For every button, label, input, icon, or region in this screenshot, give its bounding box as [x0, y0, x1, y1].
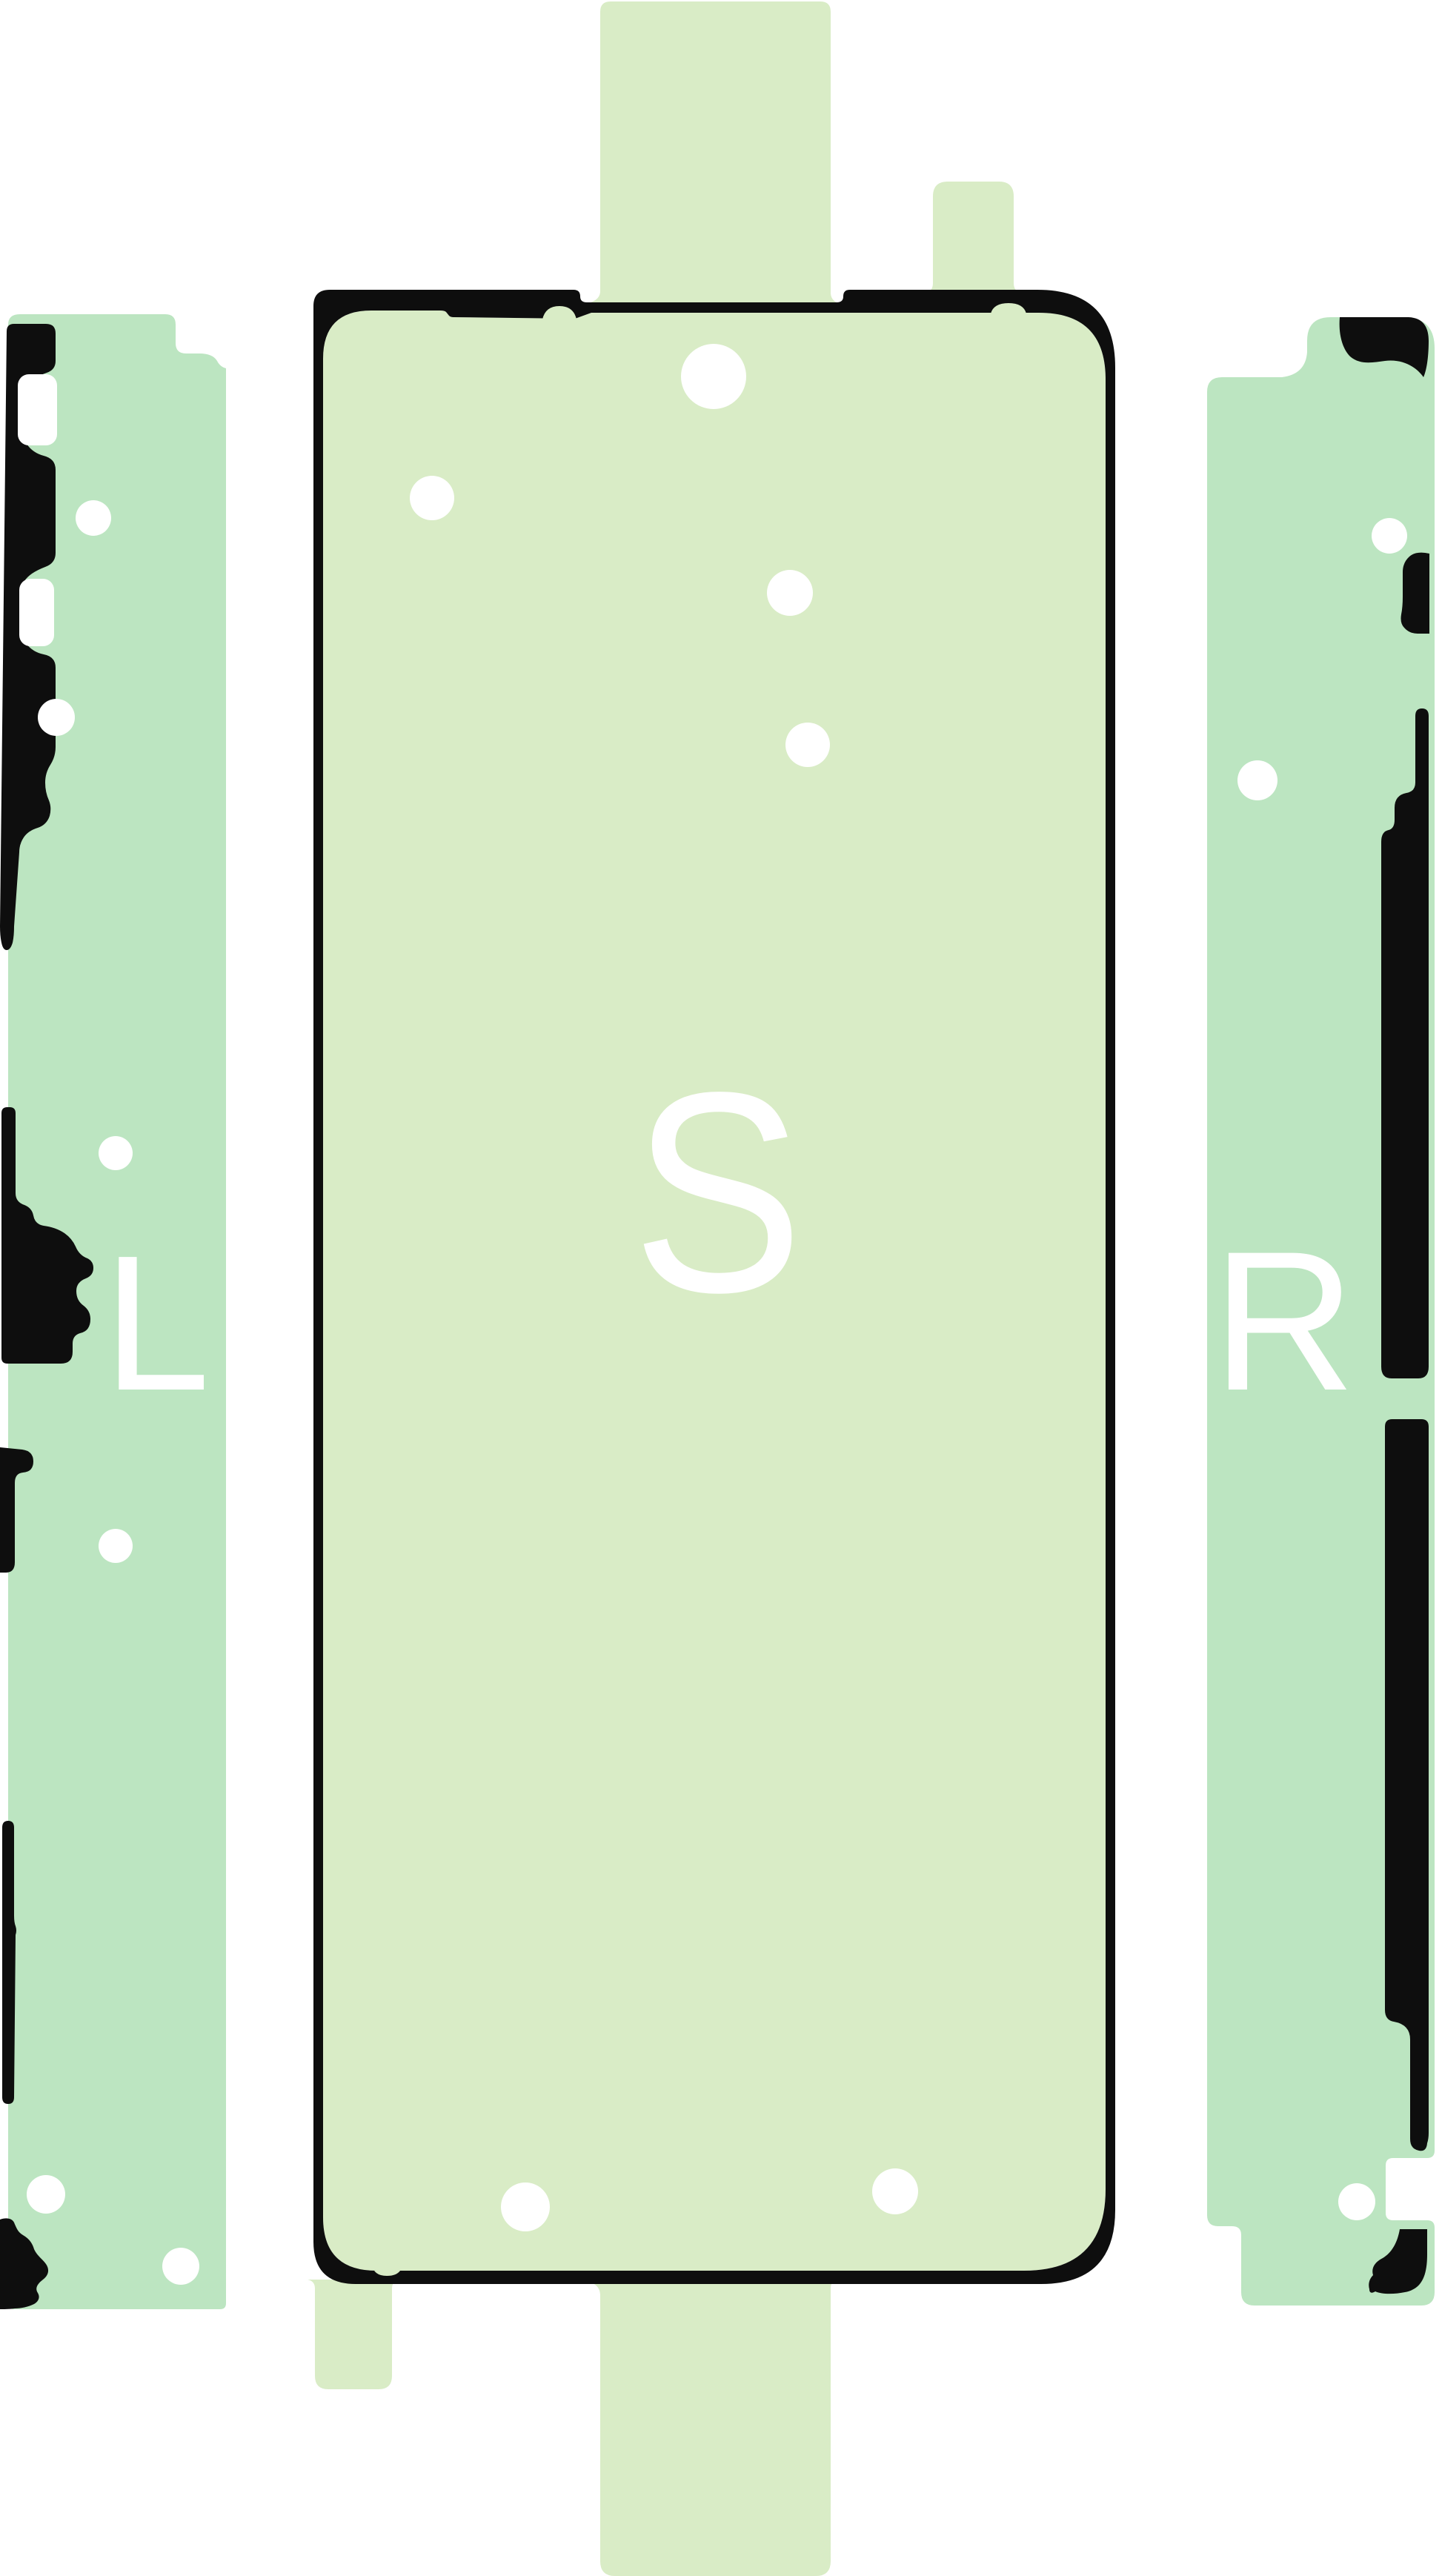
svg-text:S: S	[632, 1032, 803, 1352]
svg-text:L: L	[103, 1216, 210, 1431]
svg-text:R: R	[1212, 1209, 1356, 1432]
